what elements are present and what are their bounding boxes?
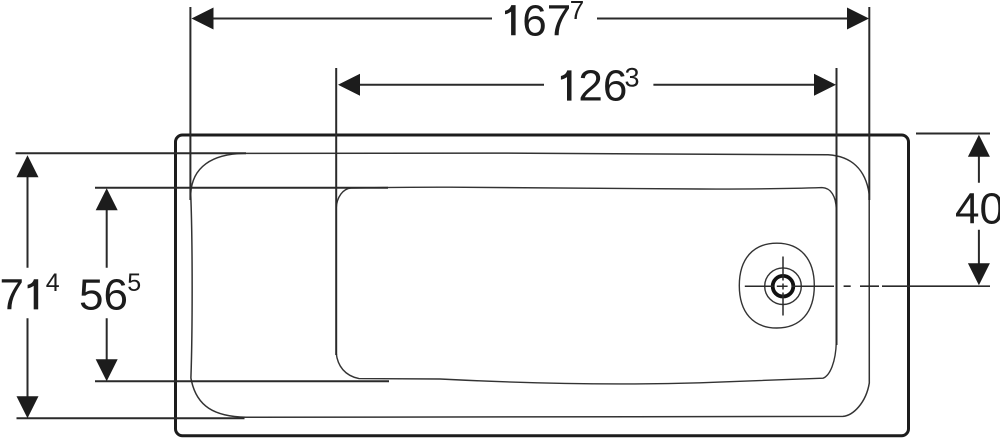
svg-text:56: 56 [79, 270, 128, 319]
svg-text:4: 4 [46, 269, 60, 297]
svg-text:5: 5 [127, 269, 141, 297]
svg-text:7: 7 [570, 0, 584, 25]
svg-text:40: 40 [955, 185, 1000, 234]
svg-text:26: 26 [578, 62, 627, 111]
svg-text:3: 3 [625, 62, 640, 92]
svg-text:7: 7 [0, 270, 24, 319]
svg-text:67: 67 [522, 0, 571, 45]
